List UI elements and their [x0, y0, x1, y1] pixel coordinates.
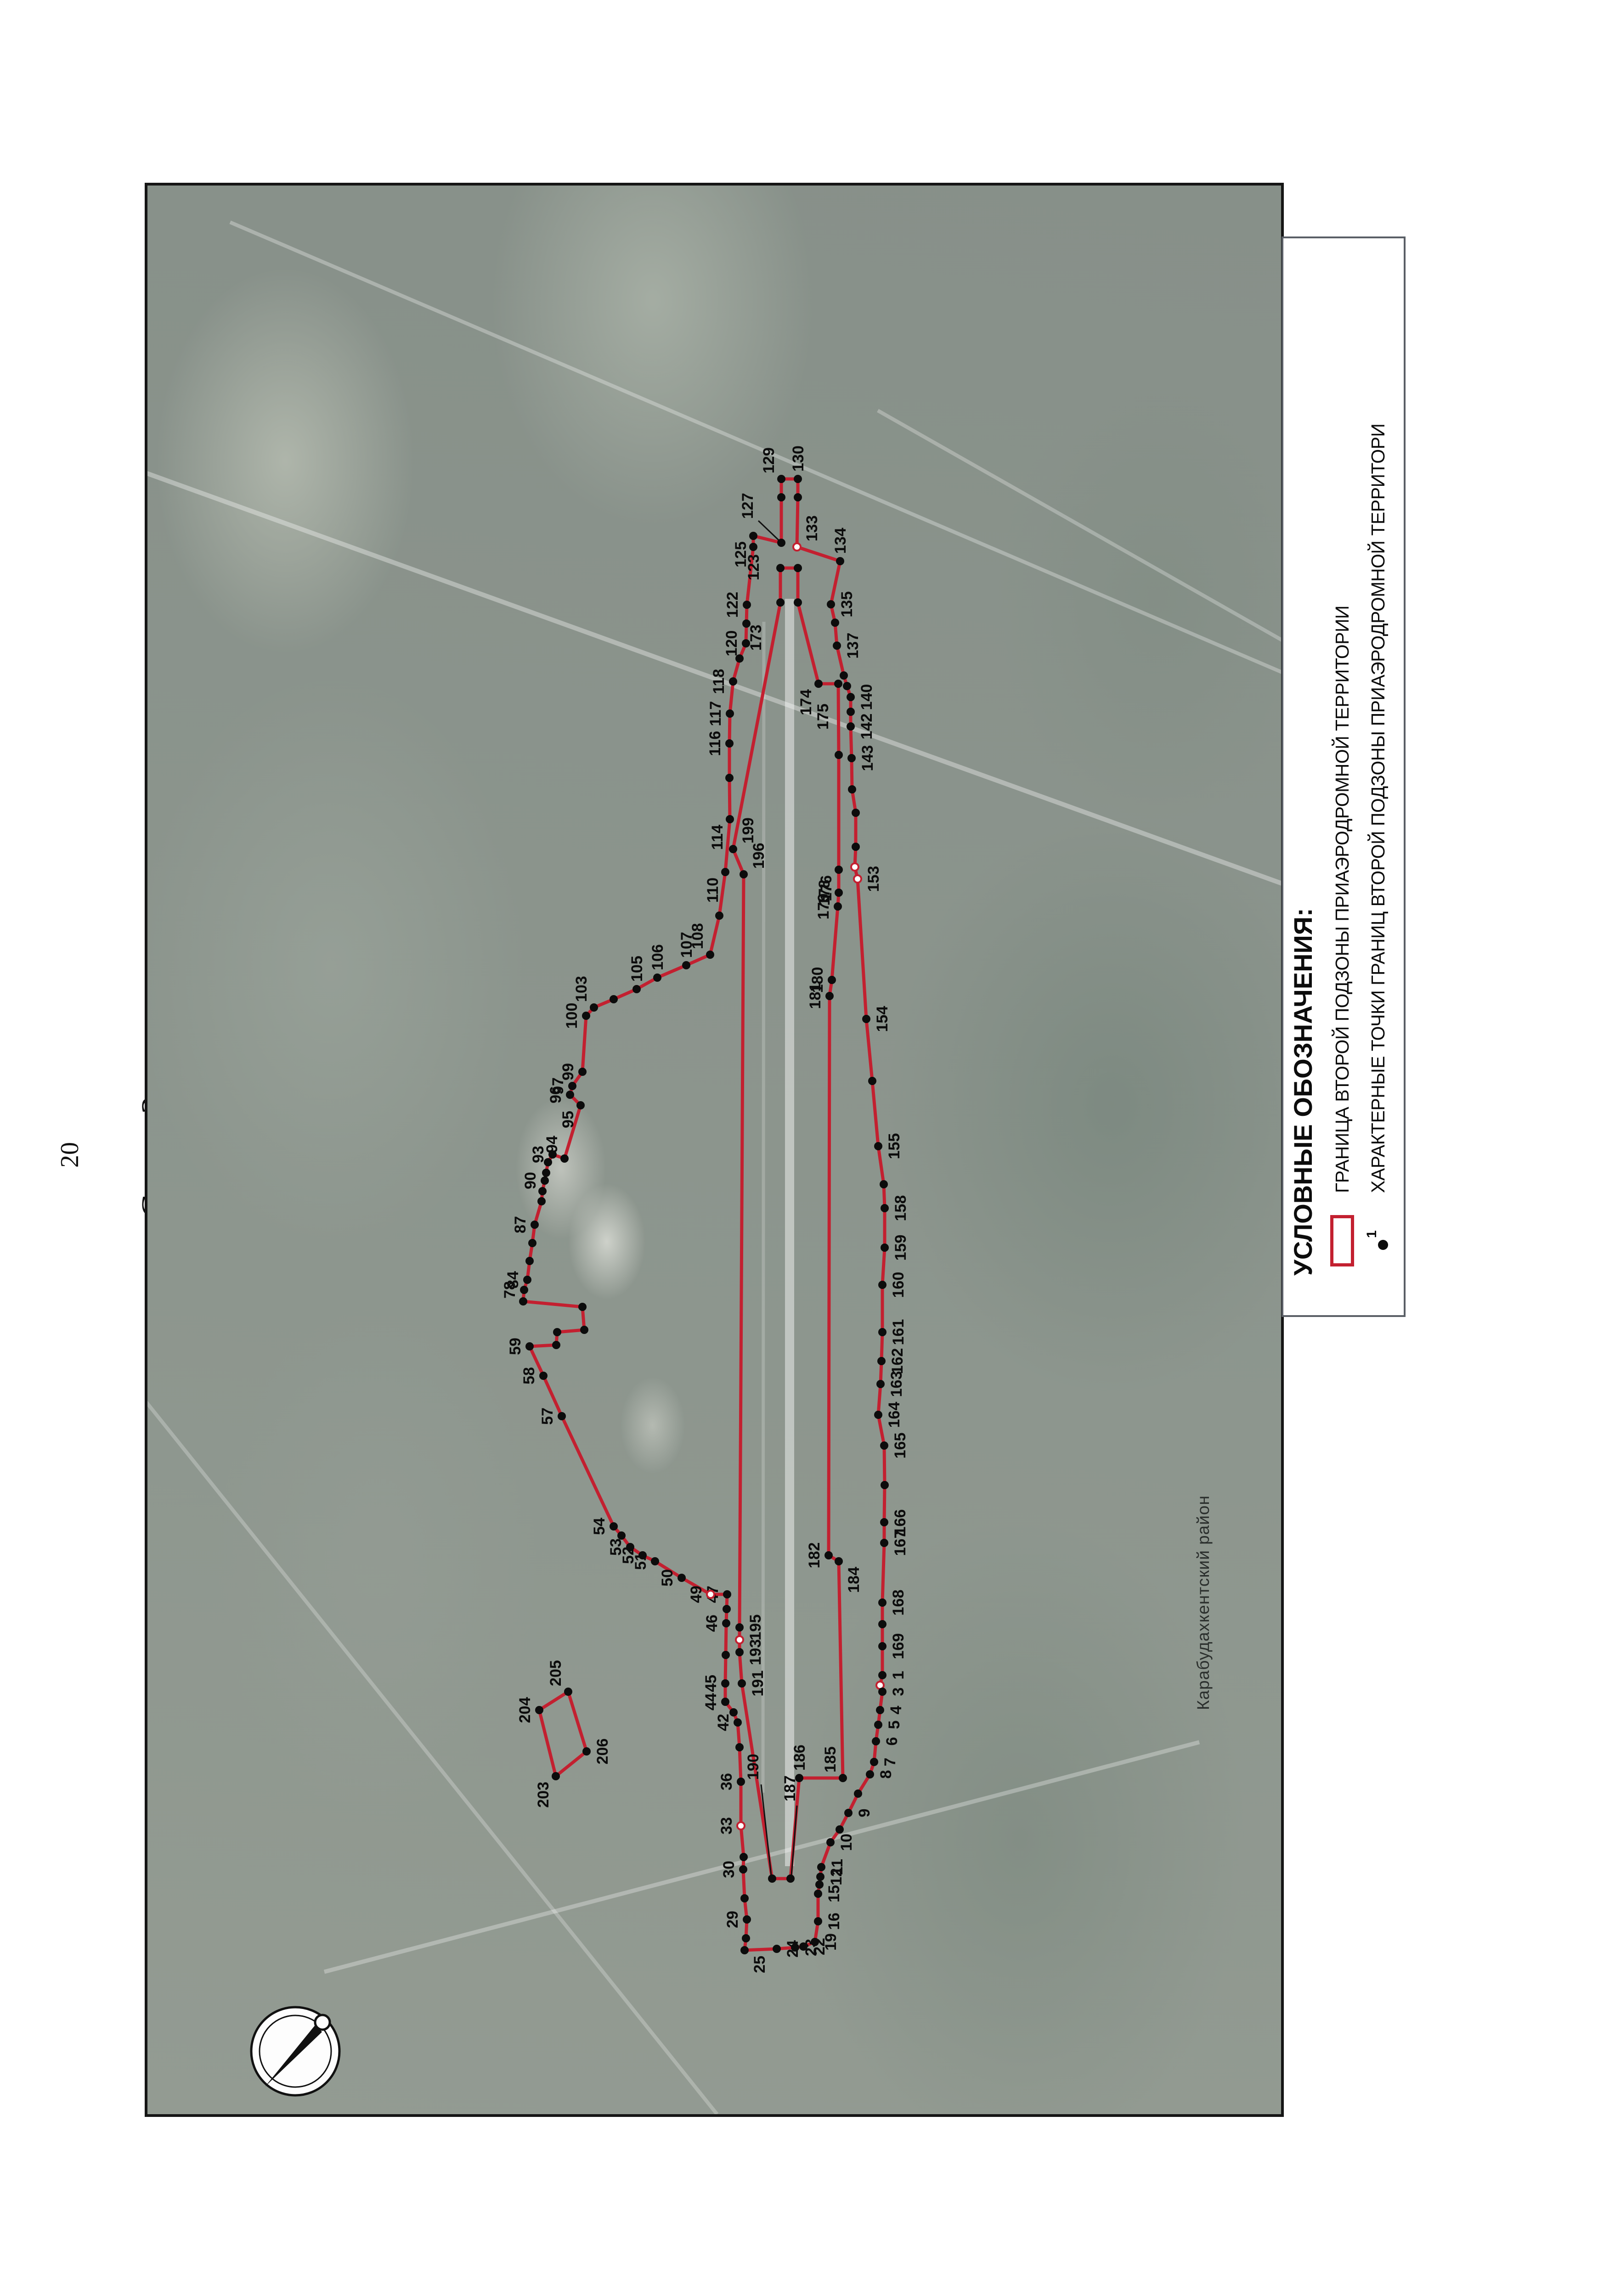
point-number-label: 204 — [516, 1697, 534, 1723]
point-number-label: 46 — [703, 1615, 721, 1632]
road-line — [230, 222, 1281, 672]
boundary-point — [870, 1758, 878, 1766]
point-number-label: 53 — [607, 1538, 625, 1556]
point-number-label: 50 — [659, 1569, 676, 1587]
boundary-point — [874, 1411, 882, 1419]
district-label: Карабудахкентский район — [1194, 1495, 1213, 1710]
boundary-point — [825, 992, 834, 1000]
point-number-label: 164 — [886, 1402, 903, 1428]
boundary-point — [725, 739, 734, 748]
boundary-point — [749, 532, 757, 540]
point-number-label: 54 — [591, 1518, 608, 1535]
point-number-label: 90 — [522, 1172, 539, 1189]
point-number-label: 1 — [890, 1671, 907, 1680]
point-number-label: 7 — [881, 1758, 899, 1767]
boundary-point — [538, 1187, 547, 1195]
point-number-label: 33 — [718, 1817, 735, 1835]
point-number-label: 16 — [825, 1913, 843, 1930]
boundary-point — [878, 1328, 887, 1336]
boundary-point — [580, 1326, 588, 1334]
point-number-label: 184 — [845, 1567, 863, 1593]
boundary-point — [539, 1372, 548, 1380]
point-number-label: 120 — [723, 630, 740, 657]
point-number-label: 25 — [751, 1956, 768, 1973]
boundary-point-open — [707, 1591, 714, 1598]
boundary-point — [839, 1774, 847, 1782]
point-number-label: 117 — [707, 701, 724, 726]
boundary-point — [651, 1557, 659, 1565]
point-number-label: 116 — [706, 731, 724, 756]
boundary-point — [726, 709, 734, 718]
boundary-point — [847, 693, 855, 701]
boundary-point — [874, 1142, 882, 1150]
boundary-point — [617, 1531, 626, 1540]
boundary-point — [740, 1853, 748, 1861]
boundary-point — [578, 1303, 587, 1311]
point-number-label: 153 — [865, 866, 882, 892]
point-number-label: 158 — [892, 1195, 909, 1221]
boundary-point — [824, 1551, 833, 1559]
point-number-label: 44 — [702, 1693, 720, 1711]
boundary-point — [552, 1341, 560, 1349]
point-number-label: 181 — [807, 983, 824, 1009]
point-number-label: 94 — [543, 1136, 561, 1153]
boundary-point-open — [854, 875, 861, 883]
boundary-point — [737, 1778, 745, 1786]
point-number-label: 135 — [838, 591, 856, 618]
point-number-label: 114 — [709, 825, 726, 850]
point-number-label: 6 — [883, 1737, 901, 1746]
boundary-point-open — [851, 863, 858, 871]
point-number-label: 182 — [806, 1542, 823, 1569]
boundary-point — [776, 598, 785, 607]
boundary-point — [835, 866, 843, 874]
point-number-label: 168 — [890, 1590, 907, 1616]
boundary-point — [847, 754, 856, 762]
boundary-point — [836, 1825, 844, 1834]
point-number-label: 3 — [890, 1688, 907, 1696]
boundary-point — [833, 642, 841, 650]
boundary-point — [541, 1176, 549, 1185]
point-number-label: 30 — [720, 1861, 738, 1878]
point-number-label: 23 — [802, 1939, 820, 1956]
boundary-point — [568, 1082, 576, 1090]
point-number-label: 110 — [704, 878, 722, 903]
point-number-label: 179 — [815, 894, 832, 920]
boundary-point — [706, 951, 714, 959]
point-number-label: 12 — [828, 1868, 845, 1885]
boundary-point — [878, 1620, 887, 1628]
legend-item-boundary: ГРАНИЦА ВТОРОЙ ПОДЗОНЫ ПРИАЭРОДРОМНОЙ ТЕ… — [1330, 606, 1354, 1266]
point-number-label: 159 — [892, 1235, 909, 1261]
boundary-point — [535, 1706, 543, 1714]
boundary-point — [877, 1357, 886, 1365]
point-number-label: 155 — [886, 1133, 903, 1159]
dot-icon — [1378, 1240, 1388, 1250]
boundary-point — [843, 682, 851, 690]
point-number-label: 57 — [539, 1407, 556, 1425]
point-number-label: 154 — [874, 1006, 891, 1032]
boundary-point — [740, 1894, 749, 1902]
point-number-label: 193 — [747, 1639, 764, 1666]
point-number-label: 127 — [739, 493, 757, 519]
boundary-point — [537, 1197, 546, 1205]
boundary-point — [729, 845, 737, 853]
boundary-quad — [539, 1692, 587, 1776]
boundary-point — [735, 1623, 744, 1632]
boundary-point — [786, 1874, 795, 1883]
point-number-label: 129 — [760, 447, 778, 473]
point-number-label: 42 — [715, 1714, 732, 1731]
boundary-point — [582, 1012, 590, 1020]
point-number-label: 99 — [559, 1063, 577, 1080]
boundary-point — [794, 475, 802, 483]
legend-heading: УСЛОВНЫЕ ОБОЗНАЧЕНИЯ: — [1288, 908, 1318, 1276]
label-leader-line — [761, 1784, 771, 1875]
point-number-label: 122 — [724, 592, 741, 618]
point-number-label: 100 — [563, 1003, 581, 1029]
boundary-point — [835, 889, 843, 897]
boundary-point — [814, 1917, 822, 1925]
boundary-point — [826, 1838, 835, 1846]
boundary-point — [632, 985, 641, 993]
compass-needle-tip-icon — [315, 2015, 330, 2030]
boundary-point — [560, 1154, 569, 1163]
boundary-point — [777, 475, 785, 483]
boundary-point — [743, 1915, 751, 1924]
boundary-point — [872, 1737, 880, 1745]
boundary-point — [834, 902, 842, 911]
boundary-point — [528, 1239, 536, 1247]
boundary-point — [743, 601, 751, 609]
point-number-label: 142 — [858, 714, 875, 740]
point-number-label: 134 — [832, 528, 849, 554]
boundary-rectangle-symbol — [1330, 1215, 1354, 1266]
point-number-label: 175 — [814, 703, 832, 730]
boundary-point — [878, 1688, 887, 1696]
point-number-label: 190 — [745, 1754, 762, 1780]
boundary-point — [881, 1481, 889, 1489]
point-number-label: 187 — [781, 1775, 799, 1801]
point-number-label: 4 — [887, 1705, 905, 1714]
boundary-point — [868, 1077, 876, 1085]
scanned-page: 20 Схема 3 13456789101112151619222324252… — [0, 0, 1615, 2296]
boundary-point — [722, 1619, 730, 1627]
boundary-point — [880, 1539, 888, 1547]
boundary-point — [840, 671, 848, 680]
legend-box: УСЛОВНЫЕ ОБОЗНАЧЕНИЯ: ГРАНИЦА ВТОРОЙ ПОД… — [1282, 236, 1406, 1317]
boundary-point — [721, 1698, 729, 1706]
point-number-label: 173 — [747, 625, 765, 651]
boundary-point-open — [736, 1636, 743, 1643]
boundary-point — [523, 1276, 531, 1284]
boundary-point — [844, 1809, 853, 1817]
boundary-point — [848, 785, 856, 793]
point-number-label: 118 — [710, 669, 728, 694]
boundary-point — [878, 1671, 887, 1679]
boundary-point — [836, 557, 844, 565]
boundary-point — [814, 1890, 822, 1898]
boundary-point — [847, 722, 855, 731]
point-number-label: 45 — [702, 1675, 720, 1692]
boundary-point — [773, 1945, 781, 1953]
boundary-point — [852, 843, 860, 851]
boundary-point — [878, 1281, 887, 1289]
point-number-label: 167 — [892, 1530, 909, 1556]
boundary-point — [876, 1380, 885, 1388]
boundary-point — [542, 1169, 550, 1177]
point-number-label: 133 — [803, 515, 821, 541]
boundary-point — [610, 1522, 618, 1531]
boundary-point — [735, 1743, 744, 1751]
boundary-point — [794, 598, 802, 607]
boundary-point — [878, 1598, 887, 1607]
boundary-point — [553, 1328, 561, 1336]
boundary-point — [740, 1946, 749, 1954]
boundary-point — [721, 1679, 729, 1688]
boundary-point — [723, 1590, 731, 1598]
point-number-label: 15 — [825, 1885, 843, 1902]
point-number-label: 161 — [890, 1319, 907, 1345]
point-number-label: 196 — [750, 843, 768, 869]
point-number-label: 195 — [747, 1615, 764, 1641]
dot-symbol-number: 1 — [1364, 1230, 1380, 1238]
point-number-label: 203 — [535, 1782, 552, 1808]
point-number-label: 185 — [822, 1746, 839, 1773]
boundary-point — [723, 1605, 731, 1613]
boundary-point — [880, 1518, 888, 1526]
page-number: 20 — [55, 1123, 85, 1187]
boundary-point — [740, 870, 748, 878]
boundary-point — [876, 1706, 884, 1714]
point-number-label: 87 — [512, 1216, 529, 1233]
point-number-label: 36 — [718, 1773, 735, 1790]
point-number-label: 8 — [877, 1770, 895, 1779]
boundary-point — [566, 1091, 574, 1099]
point-number-label: 125 — [732, 541, 750, 568]
boundary-point — [525, 1257, 534, 1265]
point-number-label: 84 — [504, 1271, 522, 1289]
point-number-label: 58 — [520, 1367, 538, 1384]
boundary-point — [794, 564, 802, 572]
boundary-point — [735, 1648, 744, 1656]
boundary-point — [828, 976, 836, 984]
boundary-point — [564, 1688, 572, 1696]
boundary-point — [590, 1003, 598, 1012]
point-dot-symbol: 1 — [1365, 1215, 1391, 1266]
boundary-point — [834, 680, 842, 688]
boundary-point — [531, 1221, 539, 1229]
boundary-point — [862, 1015, 870, 1023]
boundary-point — [626, 1543, 634, 1551]
legend-item-label: ХАРАКТЕРНЫЕ ТОЧКИ ГРАНИЦ ВТОРОЙ ПОДЗОНЫ … — [1367, 424, 1389, 1193]
legend-item-label: ГРАНИЦА ВТОРОЙ ПОДЗОНЫ ПРИАЭРОДРОМНОЙ ТЕ… — [1332, 606, 1353, 1193]
boundary-point — [817, 1863, 825, 1871]
point-number-label: 169 — [890, 1633, 907, 1660]
point-number-label: 205 — [547, 1660, 565, 1686]
point-number-label: 137 — [844, 633, 862, 659]
boundary-point — [866, 1770, 874, 1778]
point-number-label: 160 — [890, 1272, 907, 1298]
point-number-label: 191 — [749, 1671, 767, 1697]
boundary-point — [776, 564, 785, 572]
boundary-point — [768, 1874, 776, 1883]
boundary-point — [682, 961, 690, 969]
point-number-label: 10 — [838, 1834, 855, 1851]
boundary-point — [638, 1551, 647, 1559]
boundary-point — [552, 1772, 560, 1780]
point-number-label: 108 — [689, 923, 706, 949]
boundary-point — [582, 1747, 591, 1756]
point-number-label: 105 — [628, 956, 646, 982]
boundary-point — [881, 1204, 889, 1212]
boundary-point — [721, 868, 729, 876]
boundary-point — [558, 1412, 566, 1420]
boundary-point — [777, 493, 785, 501]
boundary-point — [827, 600, 835, 608]
boundary-point — [525, 1342, 534, 1351]
boundary-point — [610, 995, 618, 1003]
legend-item-points: 1 ХАРАКТЕРНЫЕ ТОЧКИ ГРАНИЦ ВТОРОЙ ПОДЗОН… — [1365, 424, 1391, 1266]
boundary-point — [726, 815, 734, 823]
point-number-label: 140 — [858, 684, 875, 710]
point-number-label: 106 — [649, 944, 666, 970]
point-number-label: 24 — [784, 1940, 802, 1958]
point-number-label: 162 — [889, 1348, 906, 1374]
point-number-label: 174 — [797, 689, 815, 715]
satellite-map: 1345678910111215161922232425293033364244… — [145, 183, 1284, 2117]
boundary-point — [749, 543, 757, 551]
boundary-point — [576, 1101, 585, 1109]
boundary-point — [847, 708, 855, 716]
point-number-label: 59 — [507, 1338, 524, 1355]
boundary-point — [880, 1441, 888, 1450]
landscape-canvas: 20 Схема 3 13456789101112151619222324252… — [0, 0, 1615, 2296]
boundary-point — [831, 619, 839, 627]
boundary-point — [835, 1557, 843, 1565]
boundary-point — [725, 774, 734, 782]
boundary-point — [734, 1718, 742, 1727]
map-svg: 1345678910111215161922232425293033364244… — [147, 186, 1281, 2114]
boundary-point — [738, 1679, 746, 1688]
boundary-point — [854, 1790, 862, 1798]
point-number-label: 29 — [724, 1911, 741, 1928]
point-number-label: 186 — [791, 1745, 808, 1771]
boundary-point — [852, 809, 860, 817]
point-number-label: 206 — [594, 1739, 611, 1765]
point-number-label: 143 — [859, 745, 876, 771]
boundary-point — [874, 1721, 882, 1729]
boundary-point — [519, 1297, 527, 1306]
boundary-point — [715, 912, 723, 920]
boundary-point — [777, 539, 785, 547]
point-number-label: 165 — [892, 1433, 909, 1459]
boundary-point — [814, 680, 823, 688]
point-number-label: 95 — [559, 1111, 577, 1128]
boundary-point-open — [793, 543, 801, 551]
boundary-point — [678, 1574, 686, 1582]
boundary-point-open — [737, 1822, 745, 1829]
road-line — [147, 1398, 717, 2114]
point-number-label: 199 — [740, 817, 757, 844]
boundary-point — [878, 1642, 887, 1650]
point-number-label: 103 — [573, 976, 590, 1002]
point-number-label: 5 — [886, 1721, 903, 1729]
boundary-point — [578, 1068, 587, 1076]
point-number-label: 9 — [856, 1809, 873, 1818]
point-number-label: 130 — [790, 445, 807, 472]
boundary-point — [742, 1934, 750, 1942]
boundary-point — [722, 1651, 730, 1659]
boundary-point — [815, 1880, 824, 1889]
boundary-point — [835, 751, 843, 759]
boundary-point — [739, 1865, 747, 1874]
boundary-point — [881, 1244, 889, 1252]
point-number-label: 49 — [688, 1586, 705, 1603]
boundary-point — [729, 1708, 738, 1716]
point-number-label: 163 — [888, 1371, 905, 1397]
boundary-point — [880, 1180, 888, 1188]
boundary-point — [653, 974, 661, 982]
boundary-point — [794, 493, 802, 501]
boundary-point — [729, 677, 737, 686]
boundary-point — [816, 1873, 824, 1881]
